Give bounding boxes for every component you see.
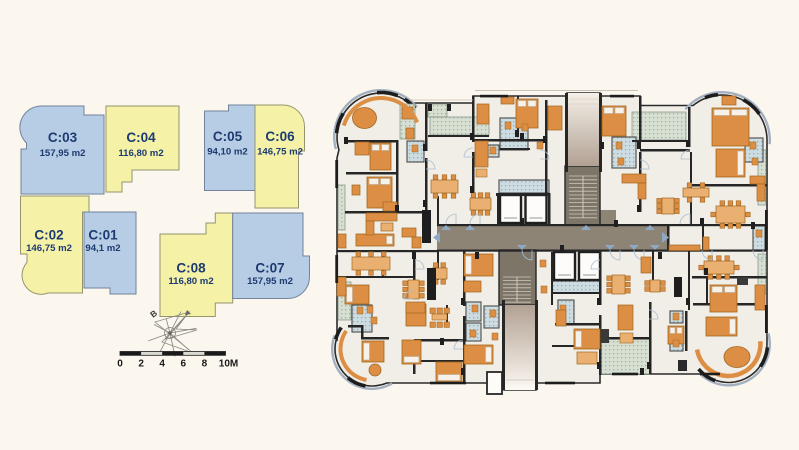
svg-text:C:08: C:08 — [176, 261, 206, 276]
svg-text:0: 0 — [117, 359, 123, 370]
svg-text:C:03: C:03 — [48, 130, 78, 145]
svg-text:157,95 m2: 157,95 m2 — [247, 276, 293, 287]
svg-text:116,80 m2: 116,80 m2 — [118, 148, 163, 159]
svg-text:C:07: C:07 — [255, 261, 284, 276]
svg-text:94,1 m2: 94,1 m2 — [85, 243, 120, 254]
svg-text:4: 4 — [159, 359, 165, 370]
svg-text:C:06: C:06 — [265, 129, 295, 144]
svg-text:8: 8 — [202, 359, 208, 370]
svg-text:116,80 m2: 116,80 m2 — [168, 276, 213, 287]
svg-text:94,10 m2: 94,10 m2 — [207, 147, 248, 158]
svg-text:146,75 m2: 146,75 m2 — [257, 147, 303, 158]
svg-text:146,75 m2: 146,75 m2 — [26, 243, 72, 254]
svg-text:10M: 10M — [219, 359, 238, 370]
svg-text:C:02: C:02 — [34, 228, 63, 243]
svg-text:2: 2 — [138, 359, 144, 370]
svg-text:C:05: C:05 — [213, 129, 243, 144]
svg-text:6: 6 — [181, 359, 187, 370]
svg-text:C:04: C:04 — [126, 130, 156, 145]
svg-text:157,95 m2: 157,95 m2 — [40, 148, 86, 159]
svg-text:C:01: C:01 — [88, 228, 118, 243]
